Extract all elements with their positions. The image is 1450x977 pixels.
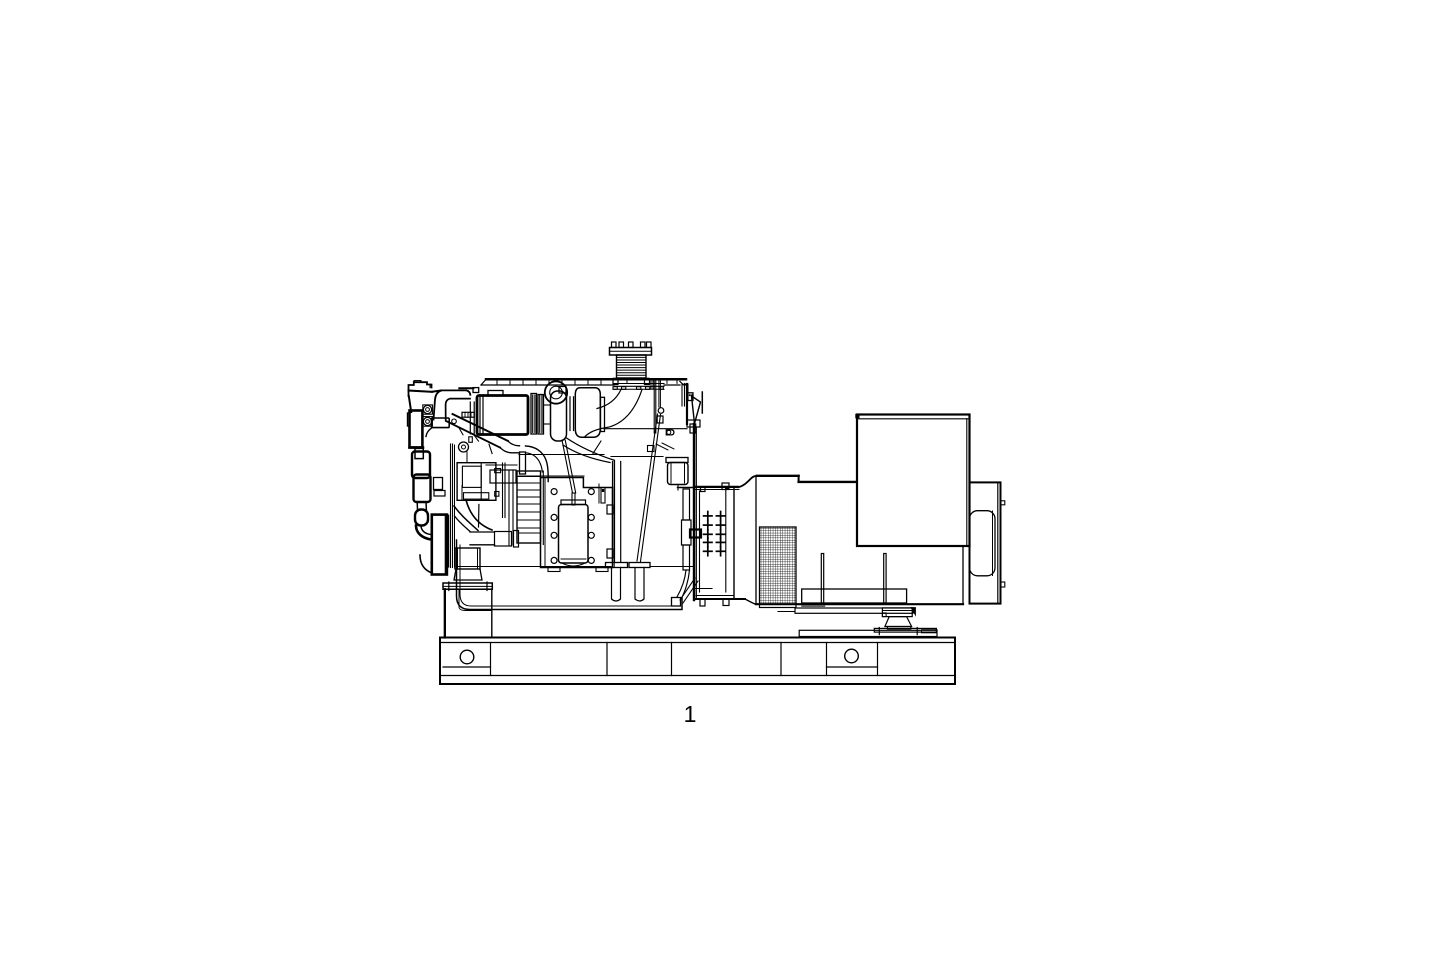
svg-text:1: 1	[684, 701, 697, 727]
